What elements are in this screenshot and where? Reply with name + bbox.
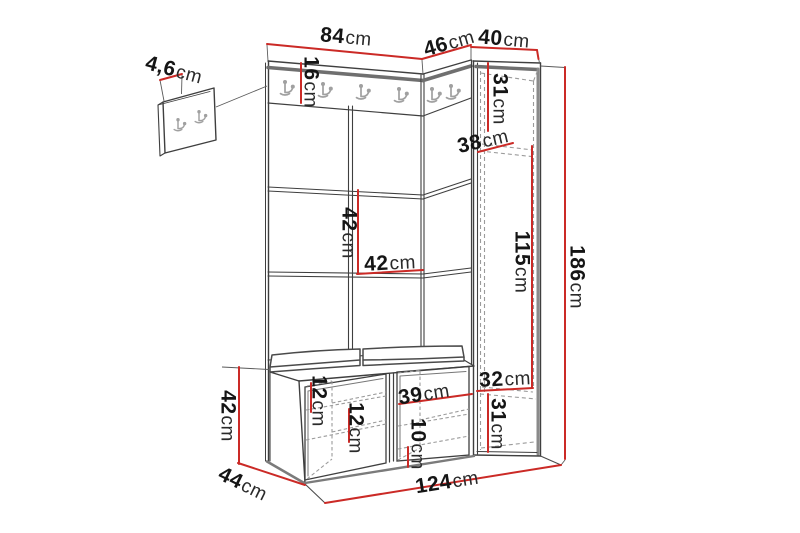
dim-label-shelf-gap-b: 12cm bbox=[346, 402, 367, 454]
dim-label-module-height: 42cm bbox=[339, 207, 360, 259]
cushion-left bbox=[270, 349, 360, 367]
dim-label-cabinet-top-section: 31cm bbox=[490, 73, 511, 125]
dim-label-panel-width: 84cm bbox=[319, 24, 372, 49]
dim-label-shelf-gap-a: 12cm bbox=[309, 375, 330, 427]
dim-label-cabinet-bottom-section: 31cm bbox=[488, 398, 509, 450]
bench bbox=[267, 360, 474, 484]
dim-label-cabinet-width: 40cm bbox=[477, 26, 530, 51]
dim-label-module-width: 42cm bbox=[364, 251, 417, 275]
corner-panel bbox=[421, 60, 472, 364]
cushion-right bbox=[363, 346, 464, 360]
furniture-dimension-diagram: 4,6cm 84cm 46cm 40cm 16cm 31cm 38cm 42cm… bbox=[0, 0, 800, 533]
detail-leader-line bbox=[216, 86, 267, 107]
detail-hook-panel bbox=[158, 88, 216, 156]
dim-label-hook-strip-height: 16cm bbox=[301, 56, 322, 108]
dim-label-total-height: 186cm bbox=[567, 245, 588, 309]
detail-panel-hooks bbox=[174, 110, 207, 131]
dim-line-cabinet-width-tick bbox=[537, 50, 539, 59]
dim-label-cubby-gap: 10cm bbox=[408, 418, 429, 470]
dim-label-cabinet-middle-section: 115cm bbox=[512, 231, 533, 294]
dim-label-cabinet-inner-width: 32cm bbox=[479, 367, 532, 391]
bench-cushions bbox=[270, 346, 464, 372]
dim-label-bench-height: 42cm bbox=[218, 390, 239, 442]
